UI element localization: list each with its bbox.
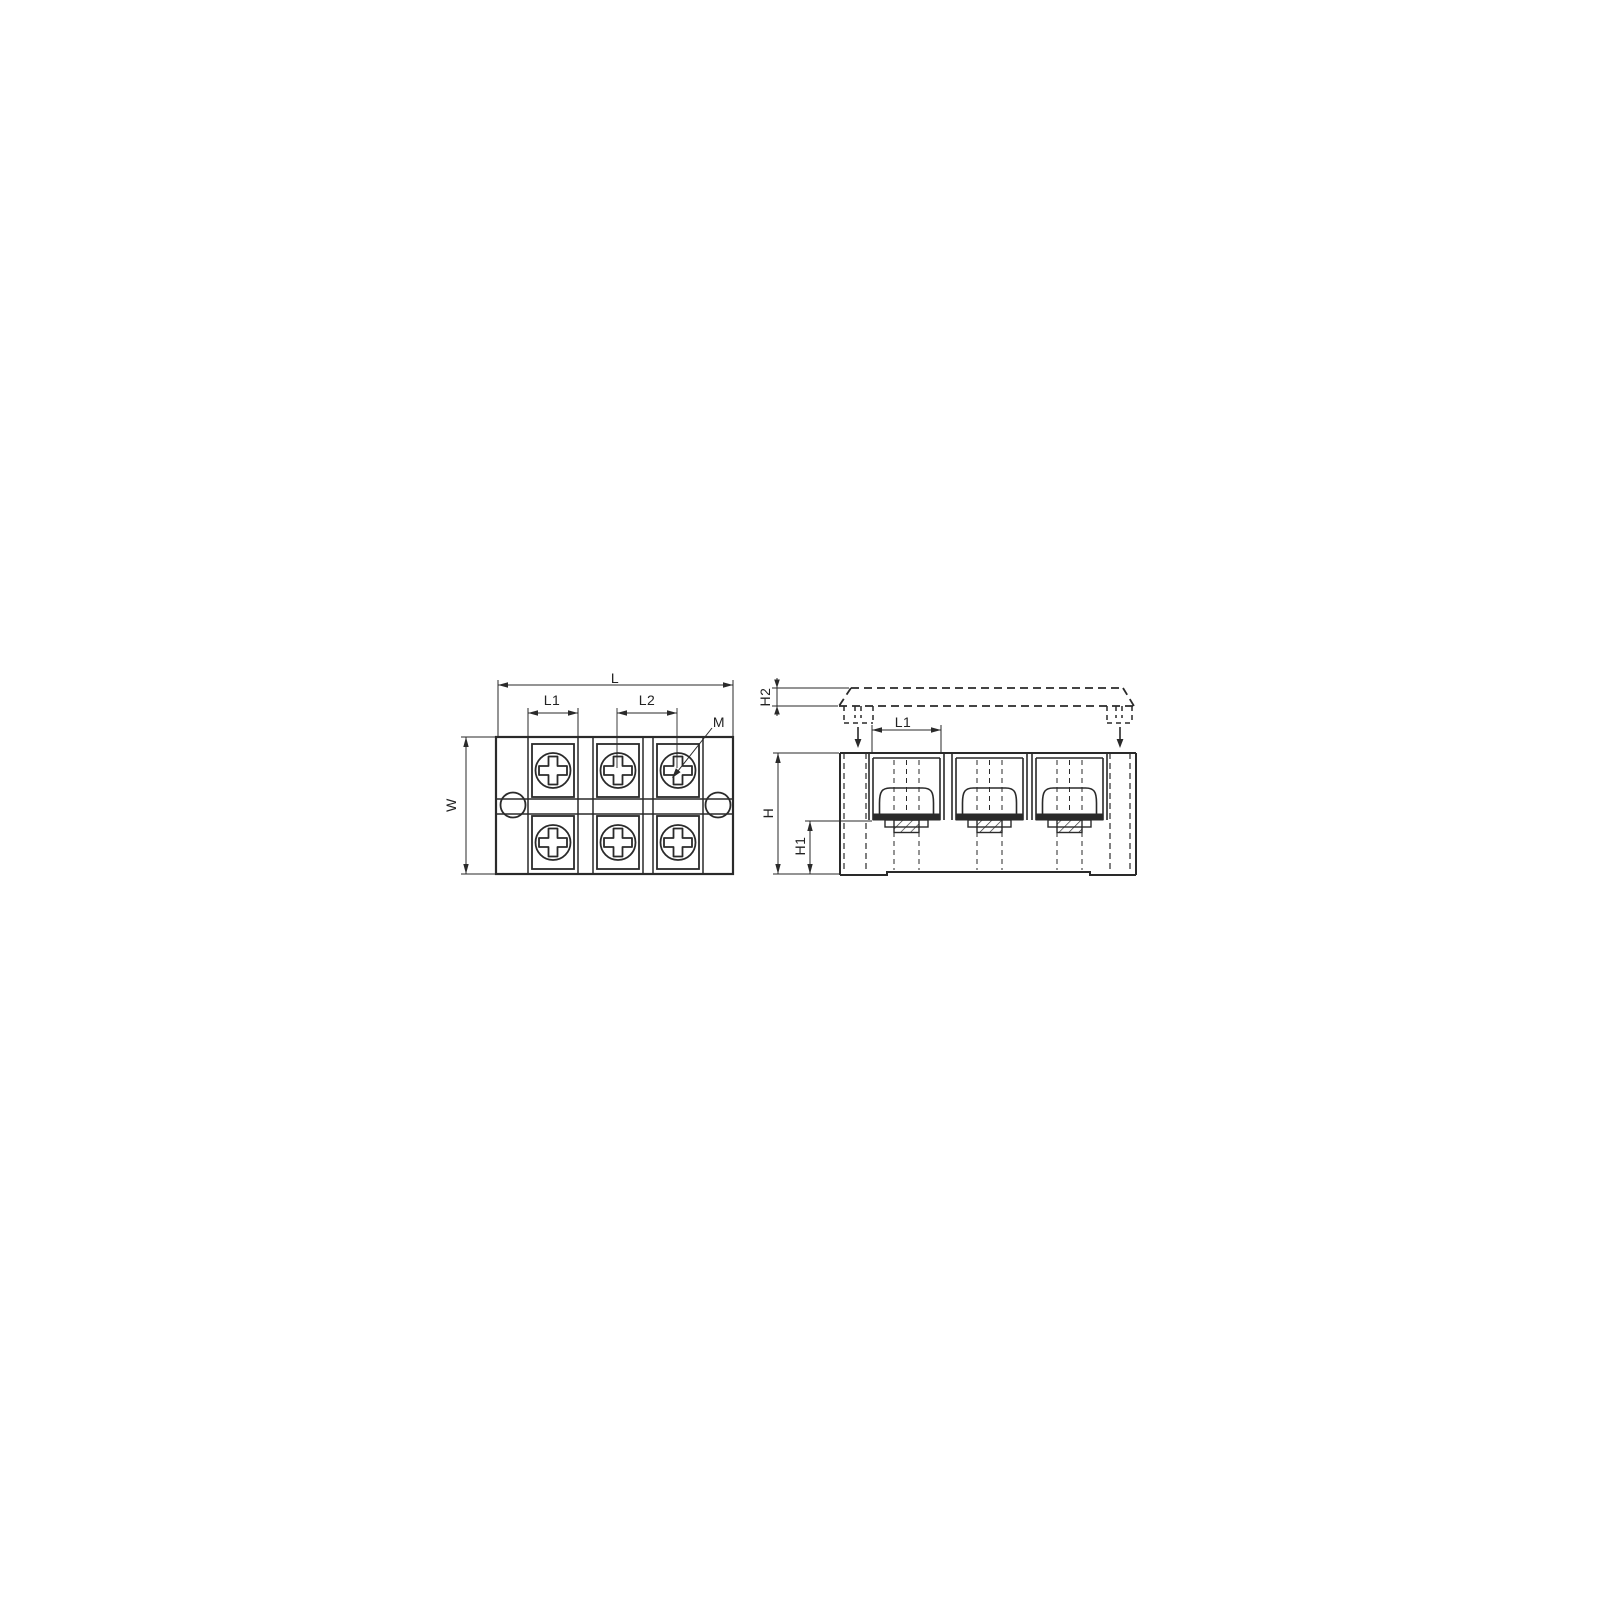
- dim-L1: [528, 708, 578, 736]
- clamp-washer: [1036, 814, 1103, 820]
- clamp-washer: [956, 814, 1023, 820]
- dim-label-screw-size: M: [713, 715, 725, 729]
- dim-label-height1: H1: [793, 837, 807, 856]
- dim-label-length: L: [611, 671, 619, 685]
- cover-leg-left: [844, 706, 873, 723]
- dim-H2: [772, 678, 849, 716]
- technical-drawing-canvas: L L1 L2 M W H2 L1 H H1: [0, 0, 1600, 1600]
- terminal-cavity-2: [952, 753, 1027, 870]
- dim-W: [461, 737, 495, 874]
- terminal-screws: [536, 753, 696, 860]
- terminal-cavity-1: [869, 753, 944, 870]
- center-rail: [496, 799, 733, 814]
- cover-outline: [839, 688, 1134, 706]
- side-view: [839, 688, 1136, 875]
- dim-label-cover-height: H2: [758, 688, 772, 707]
- dim-label-width: W: [444, 798, 458, 812]
- clamp-washer: [873, 814, 940, 820]
- top-view: [496, 737, 733, 874]
- cover-leg-right: [1107, 706, 1132, 723]
- screw-head-profile: [1043, 788, 1097, 815]
- dim-label-pitch1: L1: [544, 693, 561, 707]
- dim-label-pitch-side: L1: [895, 715, 912, 729]
- screw-head-profile: [880, 788, 934, 815]
- dim-H: [773, 753, 839, 874]
- dim-label-pitch2: L2: [639, 693, 656, 707]
- dim-label-height: H: [761, 808, 775, 819]
- terminal-cavity-3: [1032, 753, 1107, 870]
- dim-H1: [805, 821, 872, 874]
- terminal-block-drawing: [0, 0, 1600, 1600]
- screw-head-profile: [963, 788, 1017, 815]
- dim-L: [498, 680, 733, 736]
